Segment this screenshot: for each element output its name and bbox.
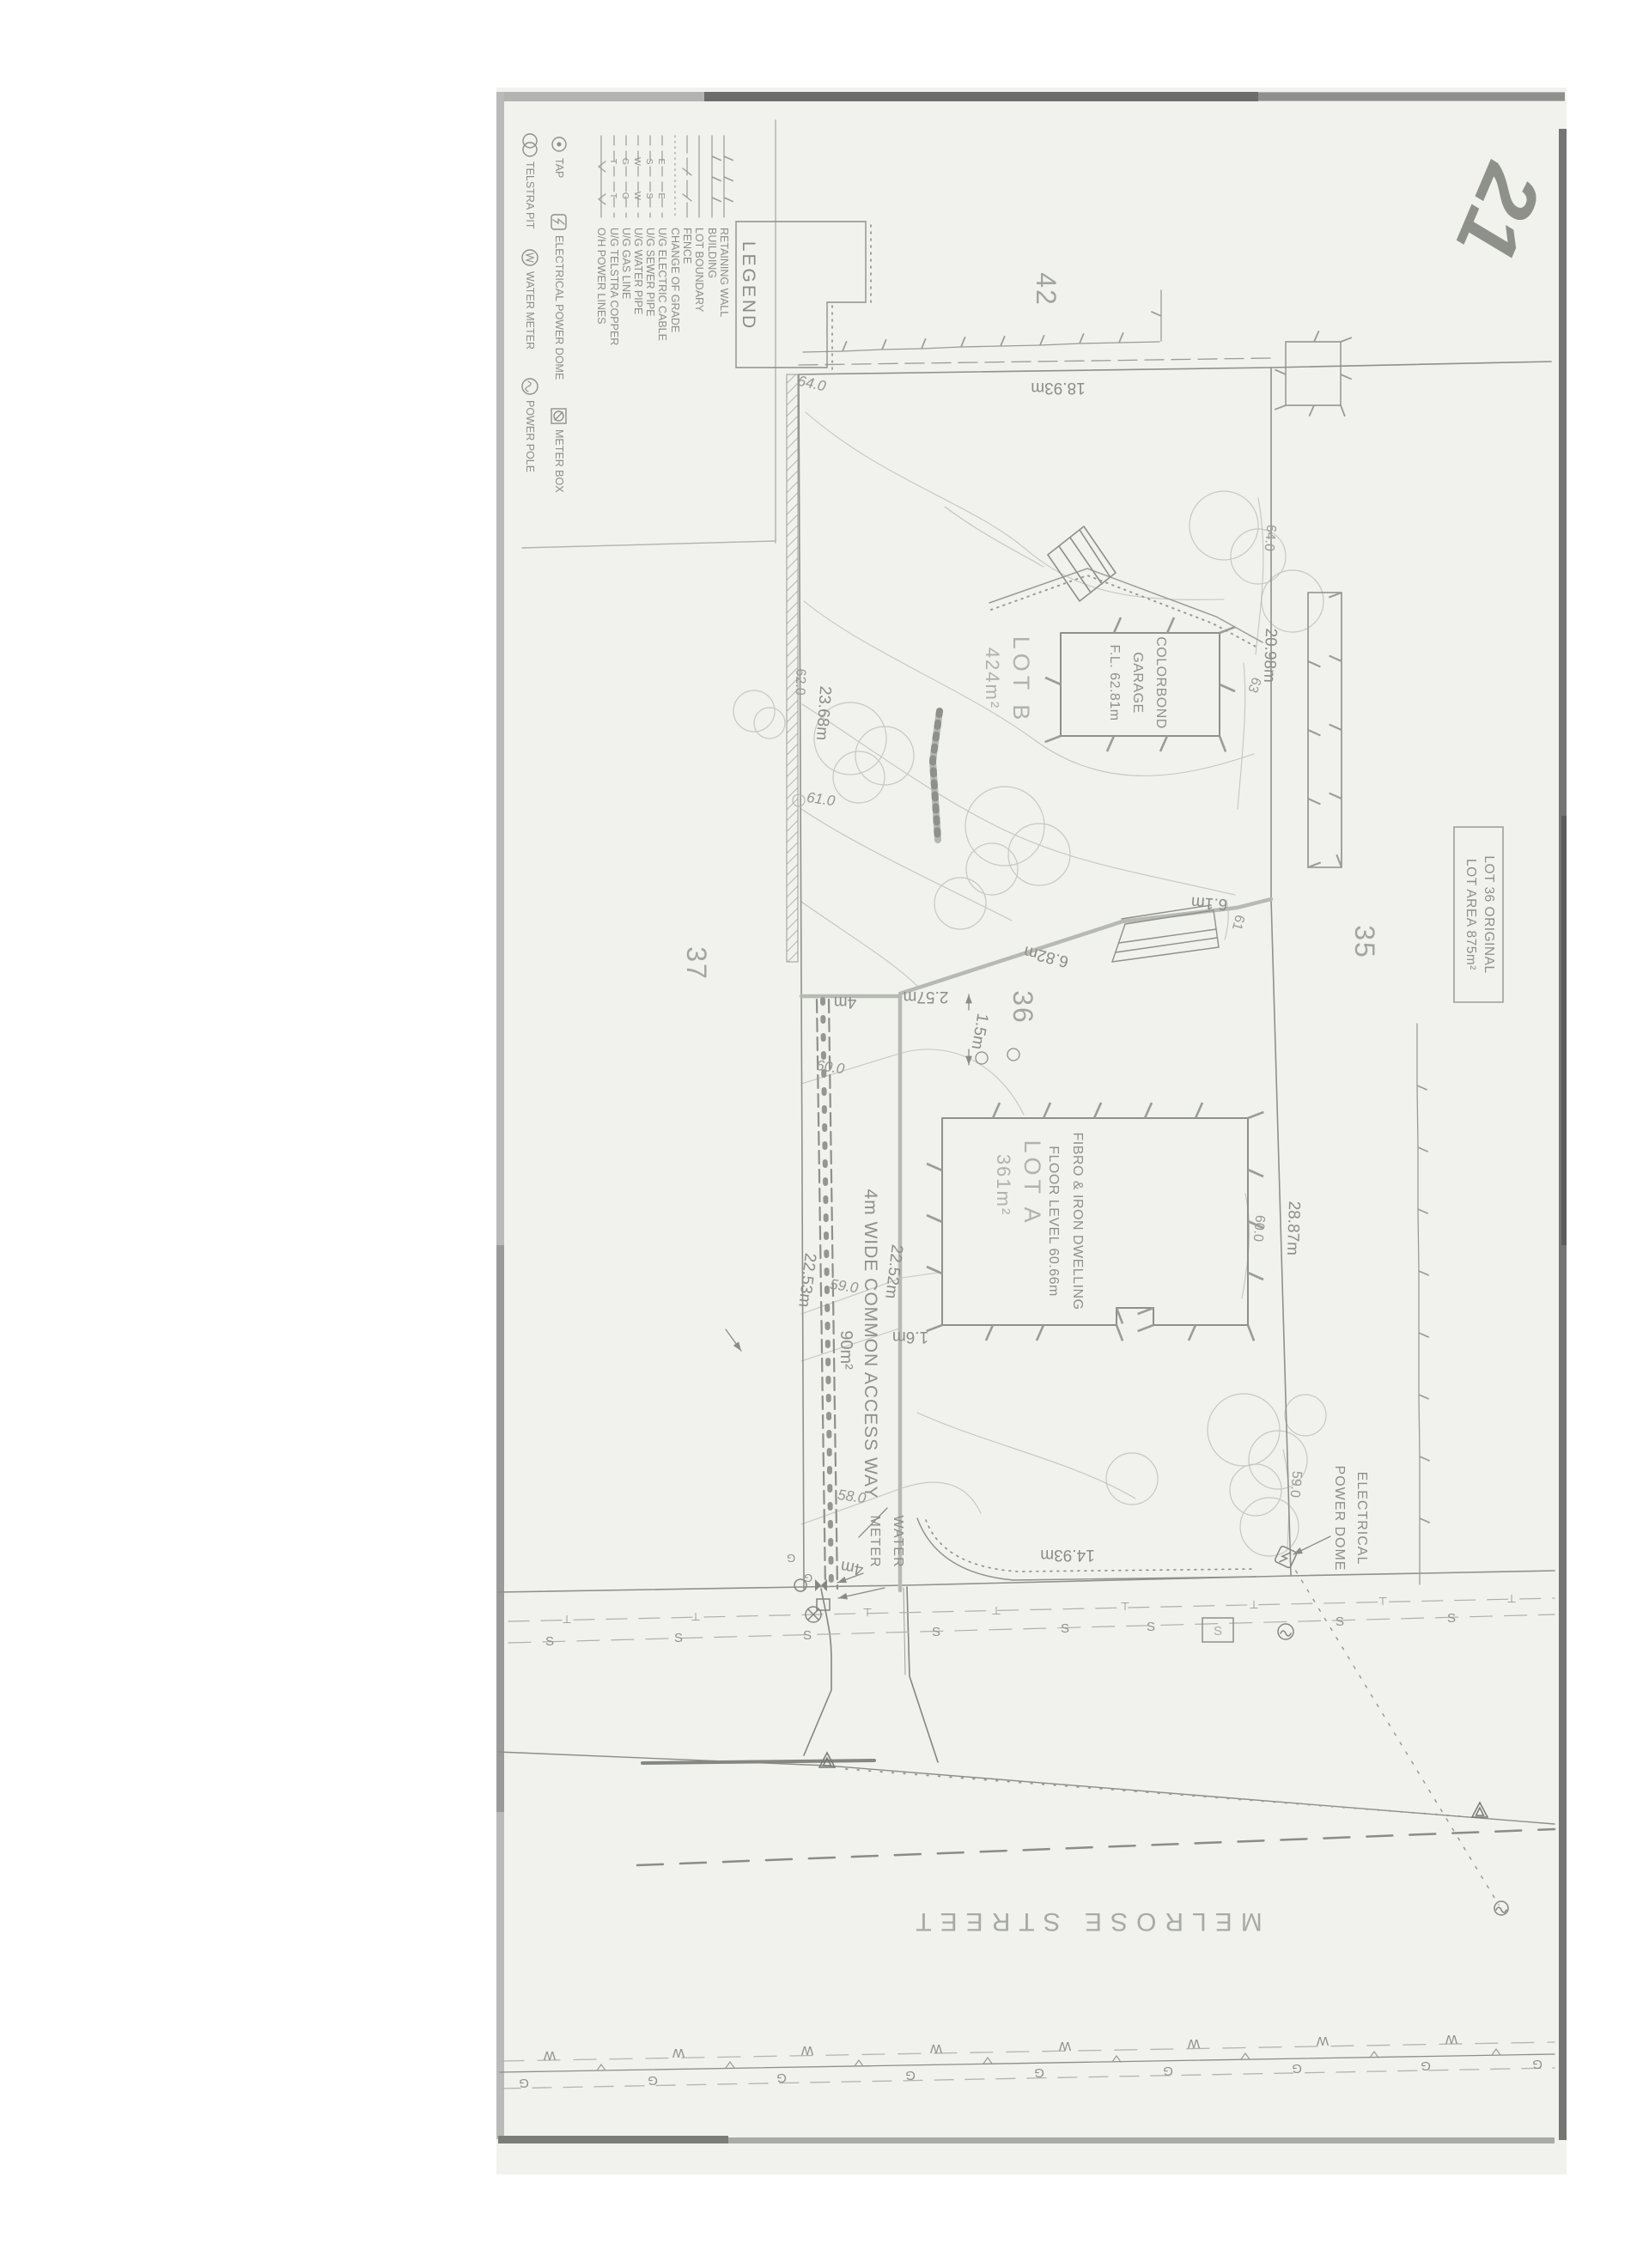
svg-text:⊥: ⊥ <box>862 1606 872 1619</box>
sewer-box-letter: S <box>1214 1624 1222 1639</box>
svg-text:G: G <box>1163 2064 1173 2078</box>
svg-text:G: G <box>905 2068 916 2083</box>
svg-text:U/G GAS LINE: U/G GAS LINE <box>620 228 632 299</box>
svg-text:LOT AREA 875m²: LOT AREA 875m² <box>1463 859 1478 970</box>
lot-a-name: LOT A <box>1019 1140 1045 1226</box>
garage-label-2: GARAGE <box>1130 652 1145 713</box>
lot-number-42: 42 <box>1031 272 1062 307</box>
lot-a-area: 361m² <box>993 1154 1014 1216</box>
dim-14-93: 14.93m <box>1040 1546 1094 1564</box>
svg-text:W: W <box>632 192 642 200</box>
dwelling-label-1: FIBRO & IRON DWELLING <box>1070 1133 1085 1310</box>
svg-text:G: G <box>519 2076 529 2090</box>
dim-28-87: 28.87m <box>1283 1201 1303 1256</box>
svg-text:G: G <box>1034 2065 1044 2080</box>
svg-text:LOT BOUNDARY: LOT BOUNDARY <box>693 228 705 313</box>
svg-text:W: W <box>672 2046 685 2060</box>
legend-title: LEGEND <box>739 241 758 331</box>
svg-text:FENCE: FENCE <box>681 228 693 264</box>
svg-text:U/G WATER PIPE: U/G WATER PIPE <box>632 228 644 314</box>
svg-text:ELECTRICAL POWER DOME: ELECTRICAL POWER DOME <box>553 235 565 380</box>
dim-23-68: 23.68m <box>812 685 834 741</box>
legend-symbol-label: TAP <box>553 158 565 178</box>
svg-text:POWER POLE: POWER POLE <box>524 400 536 472</box>
svg-text:G: G <box>1421 2058 1431 2073</box>
svg-text:E: E <box>656 192 666 198</box>
svg-text:W: W <box>1058 2039 1071 2053</box>
svg-text:TELSTRA PIT: TELSTRA PIT <box>524 161 536 229</box>
svg-text:⊥: ⊥ <box>1249 1598 1258 1611</box>
level-64: 64.0 <box>1262 524 1279 552</box>
power-dome-callout-1: ELECTRICAL <box>1354 1472 1369 1566</box>
dim-1-6: 1.6m <box>892 1328 928 1346</box>
svg-text:S: S <box>545 1634 554 1649</box>
svg-text:G: G <box>1532 2057 1543 2071</box>
lot-b-name: LOT B <box>1008 636 1034 725</box>
svg-text:W: W <box>632 157 642 166</box>
svg-text:W: W <box>1187 2036 1200 2051</box>
svg-text:⊥: ⊥ <box>1378 1595 1387 1608</box>
svg-text:S: S <box>1447 1611 1456 1626</box>
svg-text:⊥: ⊥ <box>562 1613 571 1626</box>
svg-text:WATER METER: WATER METER <box>524 271 536 350</box>
svg-text:S: S <box>644 192 654 198</box>
legend-sample-letter: E <box>656 158 666 164</box>
lot-b-area: 424m² <box>982 648 1003 709</box>
svg-text:BUILDING: BUILDING <box>706 228 718 278</box>
svg-text:S: S <box>1336 1614 1344 1629</box>
dim-20-98: 20.98m <box>1260 628 1280 683</box>
lot-number-35: 35 <box>1349 925 1380 959</box>
svg-text:W: W <box>1445 2032 1457 2046</box>
svg-text:G: G <box>648 2073 658 2088</box>
svg-text:⊥: ⊥ <box>1506 1592 1516 1605</box>
site-plan-scan: 21 LEGEND E E S S W <box>0 0 1649 2268</box>
dim-18-93: 18.93m <box>1031 379 1085 397</box>
access-way-label: 4m WIDE COMMON ACCESS WAY <box>861 1189 880 1499</box>
svg-text:W: W <box>1316 2034 1329 2048</box>
water-meter-callout-1: WATER <box>891 1516 905 1568</box>
svg-text:T: T <box>608 159 618 165</box>
dim-4m-top: 4m <box>834 993 856 1011</box>
garage-label-3: F.L. 62.81m <box>1107 644 1122 721</box>
access-way-area: 90m² <box>837 1330 855 1370</box>
level-60-e: 60.0 <box>1250 1214 1268 1243</box>
svg-text:METER BOX: METER BOX <box>553 429 565 493</box>
street-name: MELROSE STREET <box>907 1907 1262 1936</box>
svg-text:S: S <box>674 1631 683 1645</box>
svg-text:S: S <box>932 1625 940 1639</box>
dwelling-label-2: FLOOR LEVEL 60.66m <box>1046 1146 1061 1297</box>
svg-text:S: S <box>644 158 654 164</box>
svg-text:U/G ELECTRIC CABLE: U/G ELECTRIC CABLE <box>656 228 668 341</box>
dim-6-1: 6.1m <box>1190 893 1228 914</box>
scan-page <box>496 88 1567 2174</box>
svg-text:S: S <box>803 1628 812 1643</box>
svg-text:⊥: ⊥ <box>691 1610 700 1623</box>
svg-text:LOT 36 ORIGINAL: LOT 36 ORIGINAL <box>1482 855 1496 973</box>
level-59-e: 59.0 <box>1287 1470 1305 1499</box>
svg-text:G: G <box>1292 2061 1302 2076</box>
svg-text:O/H POWER LINES: O/H POWER LINES <box>595 228 607 325</box>
water-meter-callout-2: METER <box>867 1516 882 1568</box>
svg-text:⊥: ⊥ <box>1120 1600 1129 1613</box>
svg-text:G: G <box>620 158 630 165</box>
svg-text:G: G <box>776 2070 787 2085</box>
level-62: 62.0 <box>792 668 807 696</box>
svg-text:W: W <box>800 2043 813 2058</box>
dim-2-57: 2.57m <box>904 988 949 1006</box>
svg-text:U/G TELSTRA COPPER: U/G TELSTRA COPPER <box>608 228 620 345</box>
svg-text:G: G <box>620 192 630 199</box>
scanned-survey-page: { "logo_text": "21", "legend": { "title"… <box>0 0 1649 2268</box>
lot-number-37: 37 <box>681 946 712 981</box>
svg-text:S: S <box>1061 1621 1069 1636</box>
garage-label-1: COLORBOND <box>1153 636 1168 729</box>
svg-text:⊥: ⊥ <box>991 1604 1001 1617</box>
svg-text:S: S <box>1147 1620 1155 1634</box>
lot-number-36: 36 <box>1007 990 1038 1025</box>
svg-text:U/G SEWER PIPE: U/G SEWER PIPE <box>644 228 656 317</box>
svg-text:W: W <box>929 2041 942 2056</box>
svg-text:W: W <box>543 2048 556 2063</box>
power-dome-callout-2: POWER DOME <box>1332 1466 1347 1572</box>
legend-item-label: RETAINING WALL <box>718 228 730 317</box>
svg-text:CHANGE OF GRADE: CHANGE OF GRADE <box>669 228 681 332</box>
svg-text:G: G <box>787 1552 795 1565</box>
svg-text:T: T <box>608 193 618 199</box>
